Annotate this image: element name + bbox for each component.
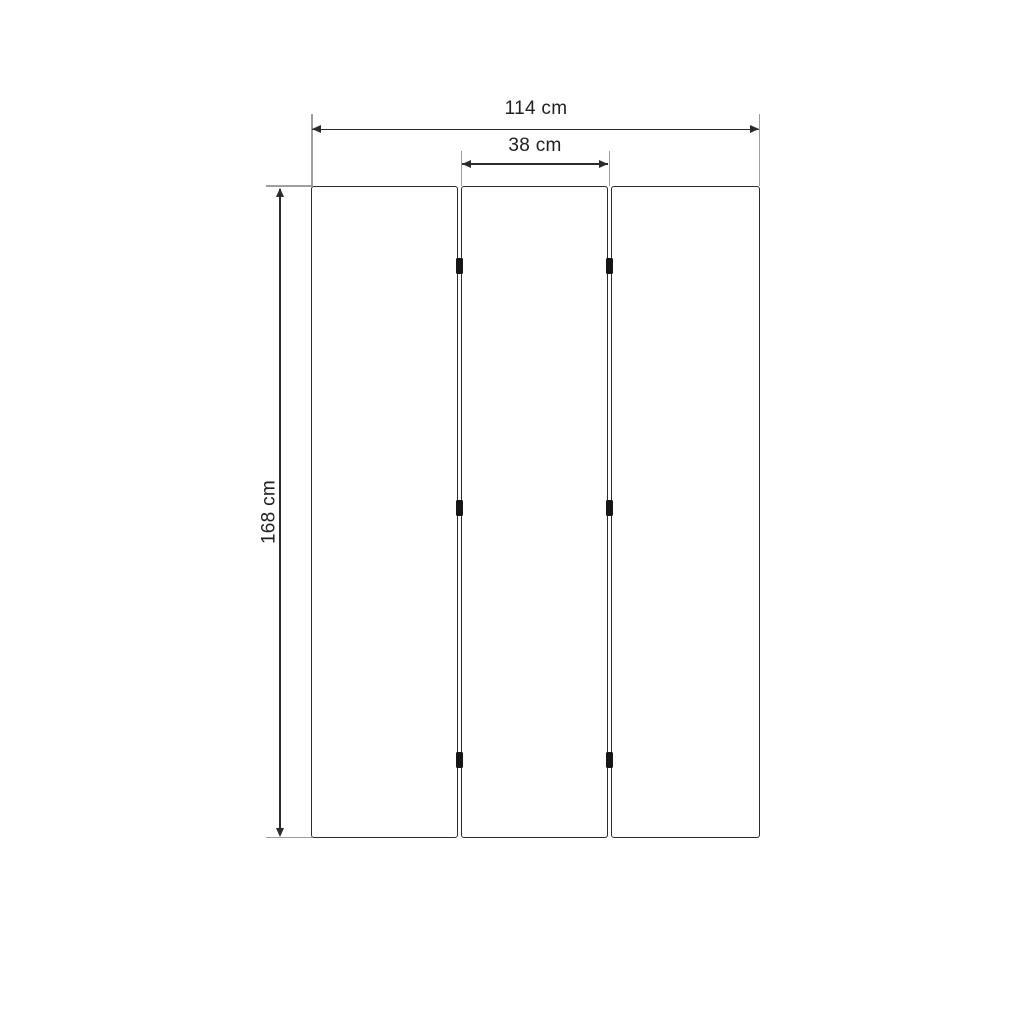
- arrowhead-down-icon: [276, 828, 284, 837]
- arrowhead-right-icon: [750, 125, 759, 133]
- panel-width-extension-line-left: [461, 151, 463, 186]
- height-dimension-label: 168 cm: [260, 480, 281, 544]
- total-width-dimension-label: 114 cm: [505, 99, 568, 120]
- panel-2: [461, 186, 608, 838]
- panel-width-extension-line-right: [609, 151, 611, 186]
- arrowhead-up-icon: [276, 188, 284, 197]
- hinge-right-middle: [606, 500, 613, 516]
- panel-1: [311, 186, 458, 838]
- hinge-right-top: [606, 258, 613, 274]
- arrowhead-left-icon: [462, 160, 471, 168]
- hinge-left-middle: [456, 500, 463, 516]
- height-dimension-line: [279, 189, 281, 835]
- arrowhead-left-icon: [312, 125, 321, 133]
- total-width-dimension-line: [312, 129, 759, 131]
- panel-3: [611, 186, 760, 838]
- panel-width-dimension-label: 38 cm: [508, 136, 561, 157]
- hinge-left-top: [456, 258, 463, 274]
- arrowhead-right-icon: [599, 160, 608, 168]
- height-extension-line-top: [266, 185, 312, 187]
- hinge-left-bottom: [456, 752, 463, 768]
- height-extension-line-bottom: [266, 837, 312, 839]
- hinge-right-bottom: [606, 752, 613, 768]
- dimension-drawing: 114 cm 38 cm 168 cm: [0, 0, 1024, 1024]
- panel-width-dimension-line: [462, 163, 608, 165]
